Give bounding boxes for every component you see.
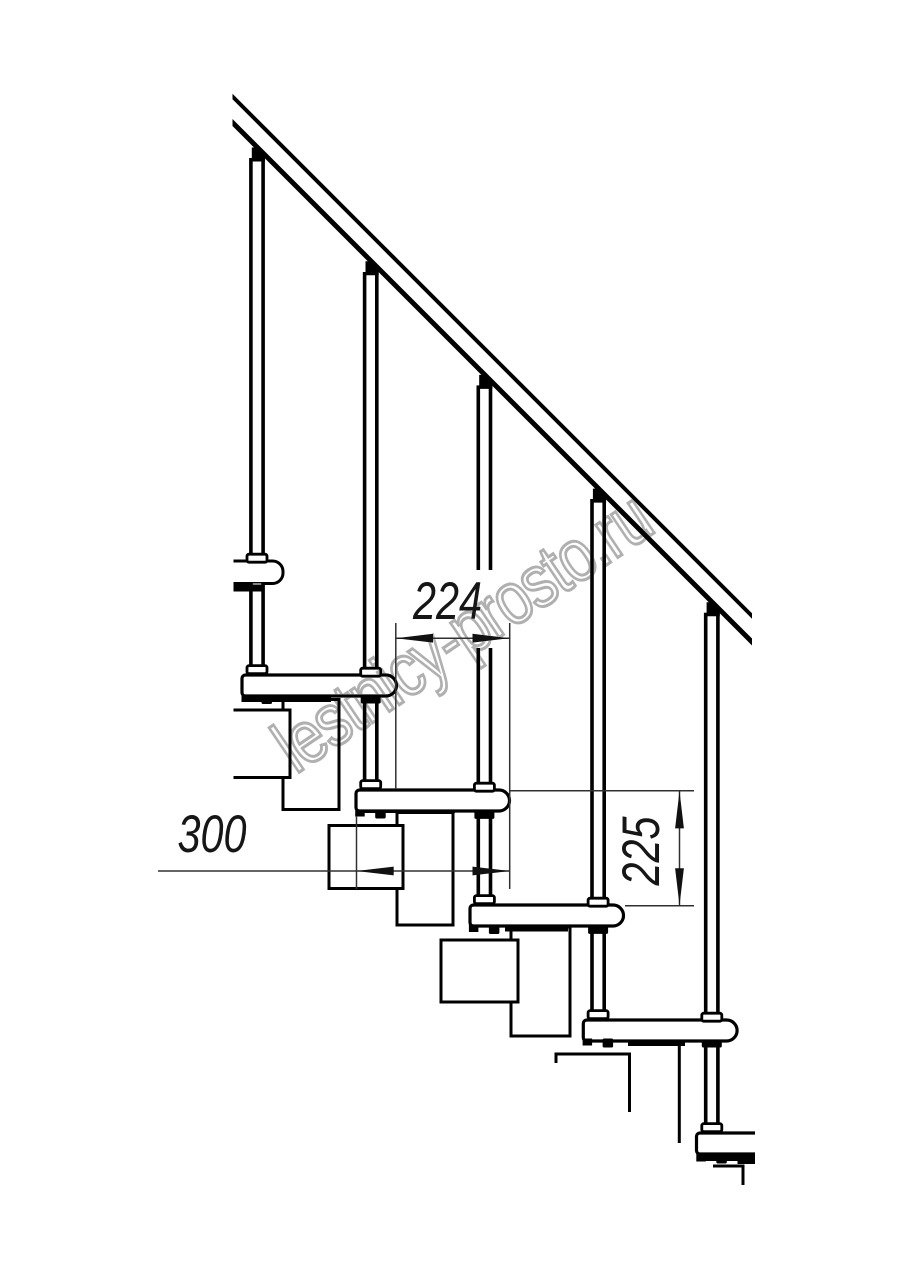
svg-text:225: 225: [612, 816, 671, 886]
svg-text:300: 300: [178, 805, 247, 864]
